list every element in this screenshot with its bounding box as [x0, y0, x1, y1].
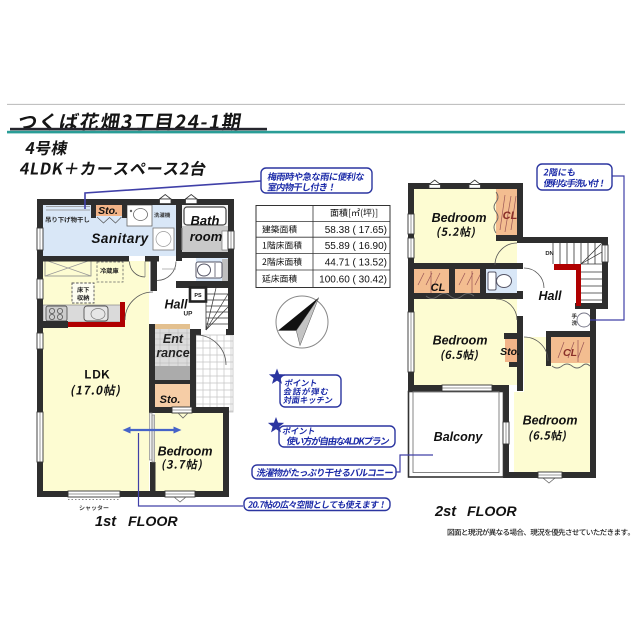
svg-text:44.71 ( 13.52): 44.71 ( 13.52)	[325, 257, 387, 268]
svg-text:2st: 2st	[434, 504, 457, 520]
svg-text:DN: DN	[545, 251, 553, 257]
svg-text:Sanitary: Sanitary	[91, 231, 149, 246]
svg-text:FLOOR: FLOOR	[128, 514, 178, 530]
svg-text:58.38 ( 17.65): 58.38 ( 17.65)	[325, 225, 387, 236]
svg-text:Bedroom: Bedroom	[432, 211, 487, 225]
svg-text:55.89 ( 16.90): 55.89 ( 16.90)	[325, 241, 387, 252]
svg-text:CL: CL	[431, 282, 446, 294]
svg-text:Bath: Bath	[191, 213, 220, 228]
svg-text:room: room	[190, 229, 223, 244]
svg-text:Sto.: Sto.	[98, 205, 118, 217]
svg-text:Bedroom: Bedroom	[523, 414, 578, 428]
svg-text:UP: UP	[184, 311, 194, 318]
svg-text:Sto.: Sto.	[500, 346, 520, 358]
svg-text:rance: rance	[156, 346, 189, 360]
svg-text:100.60 ( 30.42): 100.60 ( 30.42)	[319, 274, 387, 285]
svg-text:1st: 1st	[95, 514, 117, 530]
svg-text:Ent: Ent	[163, 332, 184, 346]
svg-text:CL: CL	[503, 210, 518, 222]
svg-text:CL: CL	[563, 347, 577, 359]
svg-text:Balcony: Balcony	[434, 430, 484, 444]
svg-text:Hall: Hall	[165, 298, 188, 312]
svg-text:Sto.: Sto.	[160, 394, 181, 406]
svg-text:FLOOR: FLOOR	[467, 504, 517, 520]
svg-text:Bedroom: Bedroom	[158, 445, 213, 459]
svg-text:Hall: Hall	[539, 289, 562, 303]
svg-text:PS: PS	[194, 293, 202, 299]
svg-text:Bedroom: Bedroom	[433, 334, 488, 348]
